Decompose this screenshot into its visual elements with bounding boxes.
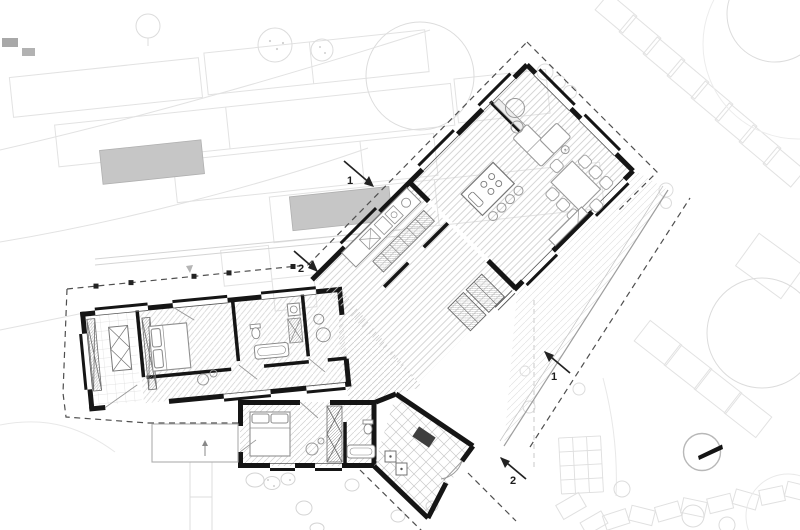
- work-table: [109, 326, 132, 372]
- section-arrow-icon: [364, 176, 374, 187]
- section-marker-2-lower: 2: [500, 457, 526, 487]
- section-label: 2: [510, 475, 516, 487]
- toilet-icon: [364, 424, 372, 434]
- section-label: 1: [551, 371, 557, 383]
- washer-icon: [287, 303, 300, 316]
- section-arrow-icon: [500, 457, 510, 468]
- toilet-icon: [363, 420, 373, 424]
- site-buildings-lower-right-chain: [634, 320, 772, 437]
- tree-icon: [703, 0, 800, 139]
- porch-posts: [94, 264, 296, 289]
- site-shed: [2, 38, 18, 47]
- wardrobe: [327, 406, 342, 462]
- garden-path: [190, 462, 212, 530]
- floor-plan-canvas: 1 1 2 2: [0, 0, 800, 530]
- section-arrow-icon: [308, 260, 318, 272]
- post-icon: [192, 274, 197, 279]
- entry-porch: [374, 394, 473, 518]
- step-arrow-icon: [202, 440, 208, 446]
- master-wing: [238, 394, 396, 470]
- post-icon: [291, 264, 296, 269]
- architectural-floor-plan: 1 1 2 2: [0, 0, 800, 530]
- section-label: 2: [298, 263, 304, 275]
- bush-icon: [136, 14, 160, 38]
- terrace: [152, 424, 238, 462]
- master-bed: [250, 412, 290, 456]
- post-icon: [129, 280, 134, 285]
- post-icon: [94, 284, 99, 289]
- bed: [149, 323, 191, 371]
- bush-icon: [311, 39, 333, 61]
- paver-grid: [559, 436, 604, 494]
- post-icon: [227, 270, 232, 275]
- section-label: 1: [347, 175, 353, 187]
- bedroom-wing: [78, 285, 351, 413]
- site-shed: [22, 48, 35, 56]
- section-marker-2-upper: 2: [294, 251, 318, 275]
- bathtub-icon: [347, 445, 375, 458]
- north-arrow: [684, 434, 724, 471]
- bathtub-icon: [254, 342, 289, 359]
- roof-slope-arrow-icon: [186, 265, 193, 273]
- stepping-stones-bottom: [556, 481, 800, 530]
- tree-icon: [707, 278, 800, 388]
- tree-icon: [727, 0, 800, 62]
- site-building-roof-fill: [100, 140, 205, 184]
- bush-icon: [258, 28, 292, 62]
